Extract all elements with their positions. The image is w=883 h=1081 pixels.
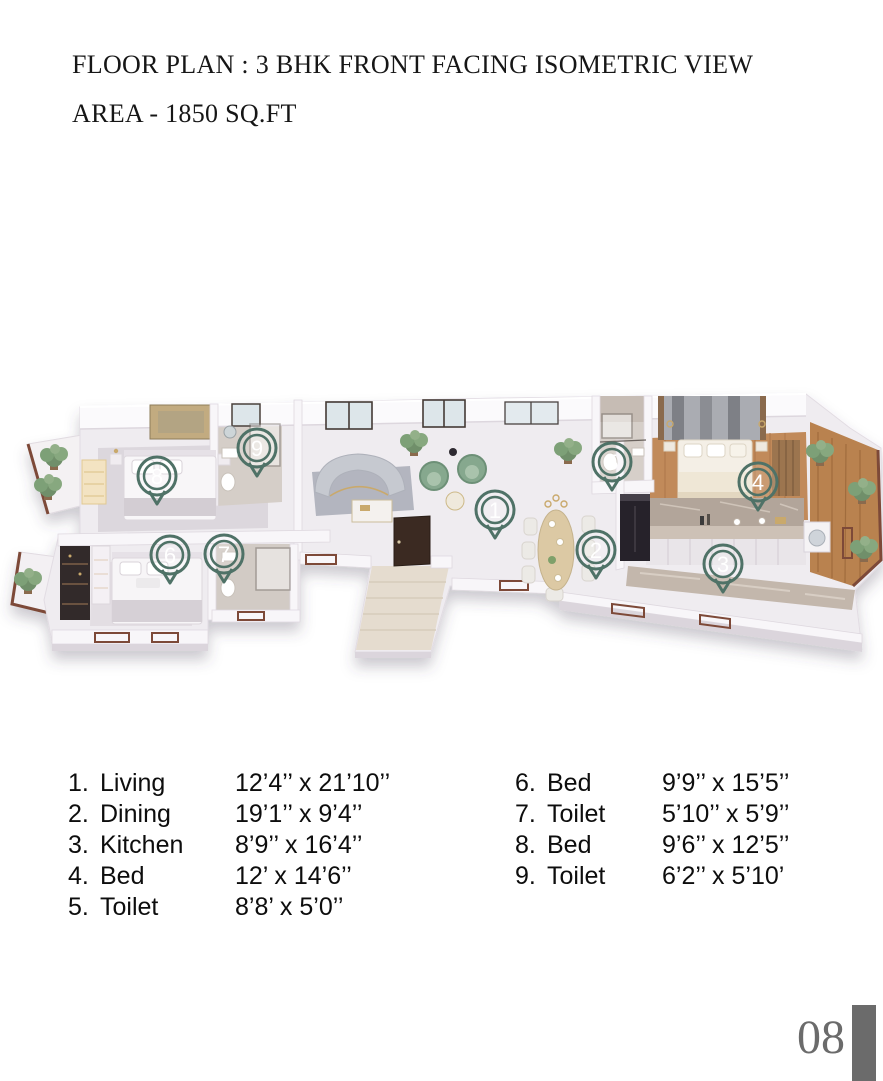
svg-text:6: 6 [164, 543, 176, 568]
area-subtitle: AREA - 1850 SQ.FT [72, 99, 297, 129]
svg-text:4: 4 [752, 470, 764, 495]
legend-column-left: 1.Living12’4’’ x 21’10’’2.Dining19’1’’ x… [68, 768, 390, 923]
svg-text:1: 1 [489, 498, 501, 523]
bedroom8-wall-art-canvas [158, 411, 204, 433]
legend-item: 6.Bed9’9’’ x 15’5’’ [515, 768, 789, 799]
svg-text:3: 3 [717, 552, 729, 577]
legend-item: 3.Kitchen8’9’’ x 16’4’’ [68, 830, 390, 861]
legend-item: 7.Toilet5’10’’ x 5’9’’ [515, 799, 789, 830]
toilet9-window [232, 404, 260, 426]
living-coffee-table [352, 500, 392, 522]
hall-window-recess [505, 402, 558, 424]
svg-text:7: 7 [218, 542, 230, 567]
washing-machine [804, 522, 830, 552]
legend-item: 5.Toilet8’8’ x 5’0’’ [68, 892, 390, 923]
svg-text:5: 5 [606, 450, 618, 475]
corner-accent-bar [852, 1005, 876, 1081]
legend-item: 9.Toilet6’2’’ x 5’10’ [515, 861, 789, 892]
page-number: 08 [797, 1014, 845, 1062]
legend-item: 4.Bed12’ x 14’6’’ [68, 861, 390, 892]
legend-item: 8.Bed9’6’’ x 12’5’’ [515, 830, 789, 861]
page-title: FLOOR PLAN : 3 BHK FRONT FACING ISOMETRI… [72, 50, 753, 80]
entry-door [394, 516, 430, 566]
svg-text:2: 2 [590, 538, 602, 563]
svg-text:8: 8 [151, 464, 163, 489]
legend-item: 2.Dining19’1’’ x 9’4’’ [68, 799, 390, 830]
floorplan-illustration: 123456789 [0, 352, 883, 687]
legend-column-right: 6.Bed9’9’’ x 15’5’’7.Toilet5’10’’ x 5’9’… [515, 768, 789, 892]
kitchen-fridge [620, 494, 650, 561]
page: { "header": { "title": "FLOOR PLAN : 3 B… [0, 0, 883, 1081]
legend-item: 1.Living12’4’’ x 21’10’’ [68, 768, 390, 799]
bedroom8-vanity [82, 460, 106, 504]
svg-text:9: 9 [251, 436, 263, 461]
master-headboard-wall [658, 396, 766, 440]
